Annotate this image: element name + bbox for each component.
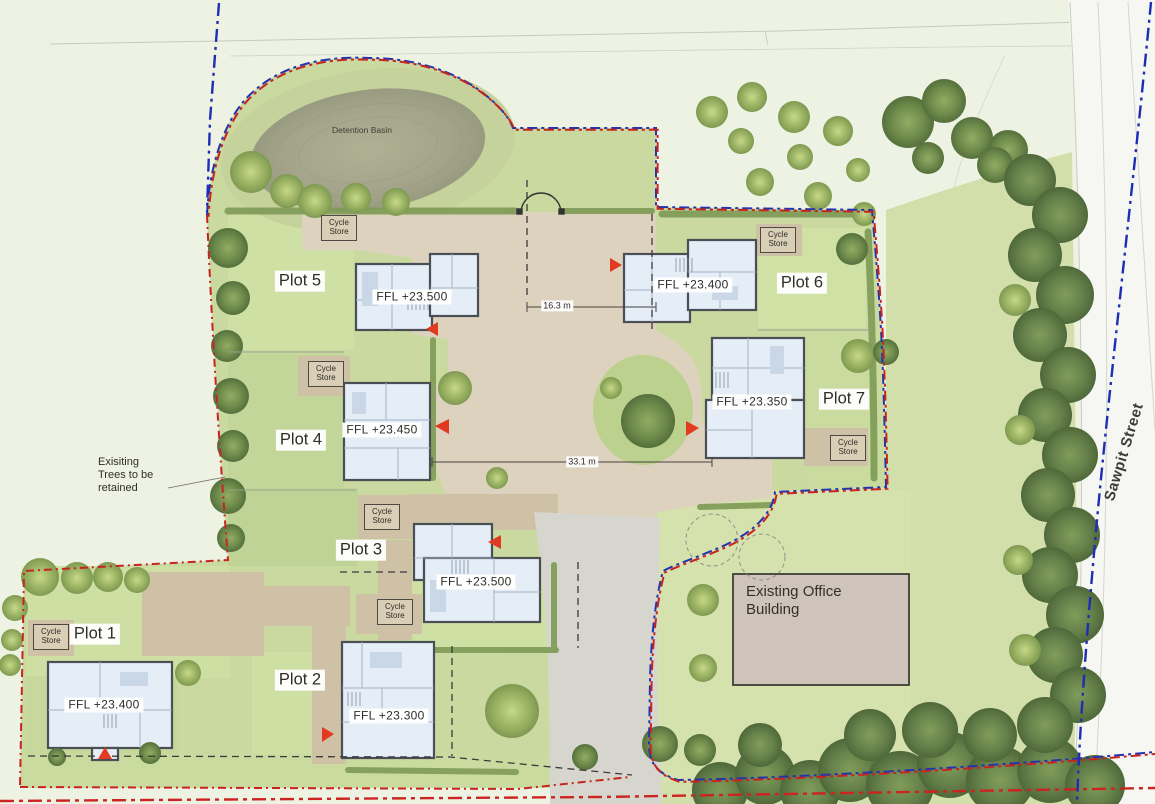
plot-2-label: Plot 2: [275, 670, 325, 691]
cycle-store-plot-1: Cycle Store: [33, 624, 69, 650]
south-access-road: [534, 512, 662, 804]
detention-basin-label: Detention Basin: [332, 125, 392, 135]
plot-4-ffl-label: FFL +23.450: [342, 423, 421, 438]
plot-7-ffl-label: FFL +23.350: [712, 395, 791, 410]
cycle-store-plot-5: Cycle Store: [321, 215, 357, 241]
site-plan-drawing: [0, 0, 1155, 804]
plot-1-label: Plot 1: [70, 624, 120, 645]
house-plot-2: [342, 642, 434, 758]
plot-5-ffl-label: FFL +23.500: [372, 290, 451, 305]
cycle-store-plot-7: Cycle Store: [830, 435, 866, 461]
plot-3-ffl-label: FFL +23.500: [436, 575, 515, 590]
cycle-store-plot-4: Cycle Store: [308, 361, 344, 387]
plot-2-ffl-label: FFL +23.300: [349, 709, 428, 724]
cycle-store-plot-2: Cycle Store: [377, 599, 413, 625]
site-plan: Detention Basin Plot 1 Plot 2 Plot 3 Plo…: [0, 0, 1155, 804]
cycle-store-plot-3: Cycle Store: [364, 504, 400, 530]
plot-6-label: Plot 6: [777, 273, 827, 294]
plot-4-label: Plot 4: [276, 430, 326, 451]
courtyard-width-dimension: 33.1 m: [566, 456, 598, 467]
existing-office-label: Existing Office Building: [746, 583, 888, 619]
plot-1-ffl-label: FFL +23.400: [64, 698, 143, 713]
plot-6-ffl-label: FFL +23.400: [653, 278, 732, 293]
cycle-store-plot-6: Cycle Store: [760, 227, 796, 253]
entrance-width-dimension: 16.3 m: [541, 300, 573, 311]
plot-3-label: Plot 3: [336, 540, 386, 561]
plot-5-label: Plot 5: [275, 271, 325, 292]
plot-7-label: Plot 7: [819, 389, 869, 410]
retained-trees-note: Exisiting Trees to be retained: [98, 456, 162, 495]
